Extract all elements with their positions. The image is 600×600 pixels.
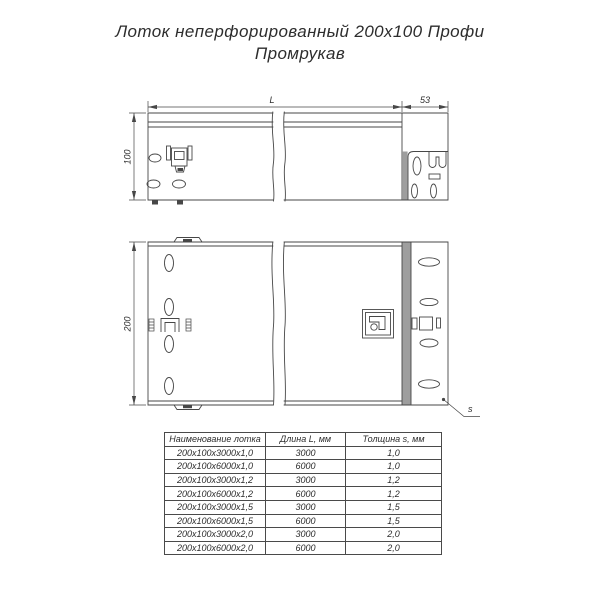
table-row: 200х100х3000х1,230001,2 <box>165 473 442 487</box>
table-cell: 2,0 <box>346 528 442 542</box>
connector-edge-shading <box>402 243 411 405</box>
side-slot <box>173 180 186 188</box>
table-cell: 200х100х6000х1,5 <box>165 514 266 528</box>
connector-inner-outline <box>408 152 448 201</box>
table-cell: 200х100х3000х1,5 <box>165 500 266 514</box>
table-row: 200х100х6000х1,060001,0 <box>165 460 442 474</box>
side-slot <box>149 154 161 162</box>
bottom-tab <box>152 200 158 205</box>
connector-slot <box>413 157 421 175</box>
dim-label-thickness: s <box>468 404 473 414</box>
connector-cutout <box>429 152 446 168</box>
dim-label-length: L <box>269 95 274 105</box>
connector-slot <box>420 339 438 347</box>
table-cell: 200х100х3000х1,2 <box>165 473 266 487</box>
table-row: 200х100х6000х1,260001,2 <box>165 487 442 501</box>
dim-label-connector-width: 53 <box>420 95 430 105</box>
bracket-detail <box>161 319 179 332</box>
table-cell: 200х100х3000х1,0 <box>165 446 266 460</box>
header-thickness: Толщина s, мм <box>346 433 442 447</box>
base-slot <box>165 255 174 272</box>
latch-clamp <box>172 148 188 166</box>
connector-slot <box>419 380 440 388</box>
table-row: 200х100х6000х1,560001,5 <box>165 514 442 528</box>
table-cell: 3000 <box>266 473 346 487</box>
top-view: L 53 100 <box>123 95 449 205</box>
table-cell: 1,2 <box>346 487 442 501</box>
header-length: Длина L, мм <box>266 433 346 447</box>
plan-view: 200 <box>123 238 481 417</box>
table-cell: 3000 <box>266 446 346 460</box>
table-cell: 200х100х6000х1,0 <box>165 460 266 474</box>
table-cell: 1,0 <box>346 446 442 460</box>
spring-hatch-right <box>186 319 191 331</box>
break-line <box>283 242 285 405</box>
connector-slot <box>431 184 437 198</box>
table-row: 200х100х3000х1,530001,5 <box>165 500 442 514</box>
connector-edge-shading <box>403 152 408 200</box>
dim-label-height: 100 <box>123 149 133 164</box>
header-tray-name: Наименование лотка <box>165 433 266 447</box>
base-slot <box>165 336 174 353</box>
break-line <box>284 112 286 201</box>
spring-hatch-left <box>149 319 154 331</box>
table-cell: 200х100х6000х2,0 <box>165 541 266 555</box>
table-row: 200х100х6000х2,060002,0 <box>165 541 442 555</box>
table-cell: 6000 <box>266 514 346 528</box>
base-slot <box>165 299 174 316</box>
base-slot <box>165 378 174 395</box>
connector-slot <box>412 184 418 198</box>
latch-lock-detail <box>363 310 394 339</box>
connector-slot <box>420 298 438 305</box>
drawing-page: Лоток неперфорированный 200х100 Профи Пр… <box>0 0 600 600</box>
table-cell: 1,5 <box>346 500 442 514</box>
table-cell: 1,2 <box>346 473 442 487</box>
leader-line-thickness <box>444 400 481 417</box>
side-slot <box>147 180 160 188</box>
table-cell: 6000 <box>266 541 346 555</box>
table-row: 200х100х3000х1,030001,0 <box>165 446 442 460</box>
dimension-lines <box>134 107 448 200</box>
table-cell: 3000 <box>266 528 346 542</box>
table-header-row: Наименование лотка Длина L, мм Толщина s… <box>165 433 442 447</box>
spec-table-body: 200х100х3000х1,030001,0200х100х6000х1,06… <box>165 446 442 555</box>
connector-square-hole <box>420 317 433 330</box>
table-cell: 200х100х6000х1,2 <box>165 487 266 501</box>
table-cell: 1,0 <box>346 460 442 474</box>
spec-table: Наименование лотка Длина L, мм Толщина s… <box>164 432 442 555</box>
table-cell: 6000 <box>266 460 346 474</box>
bottom-tab <box>177 200 183 205</box>
table-cell: 200х100х3000х2,0 <box>165 528 266 542</box>
table-cell: 3000 <box>266 500 346 514</box>
table-cell: 6000 <box>266 487 346 501</box>
table-row: 200х100х3000х2,030002,0 <box>165 528 442 542</box>
table-cell: 1,5 <box>346 514 442 528</box>
dim-label-width: 200 <box>123 316 133 332</box>
table-cell: 2,0 <box>346 541 442 555</box>
connector-slot <box>419 258 440 266</box>
